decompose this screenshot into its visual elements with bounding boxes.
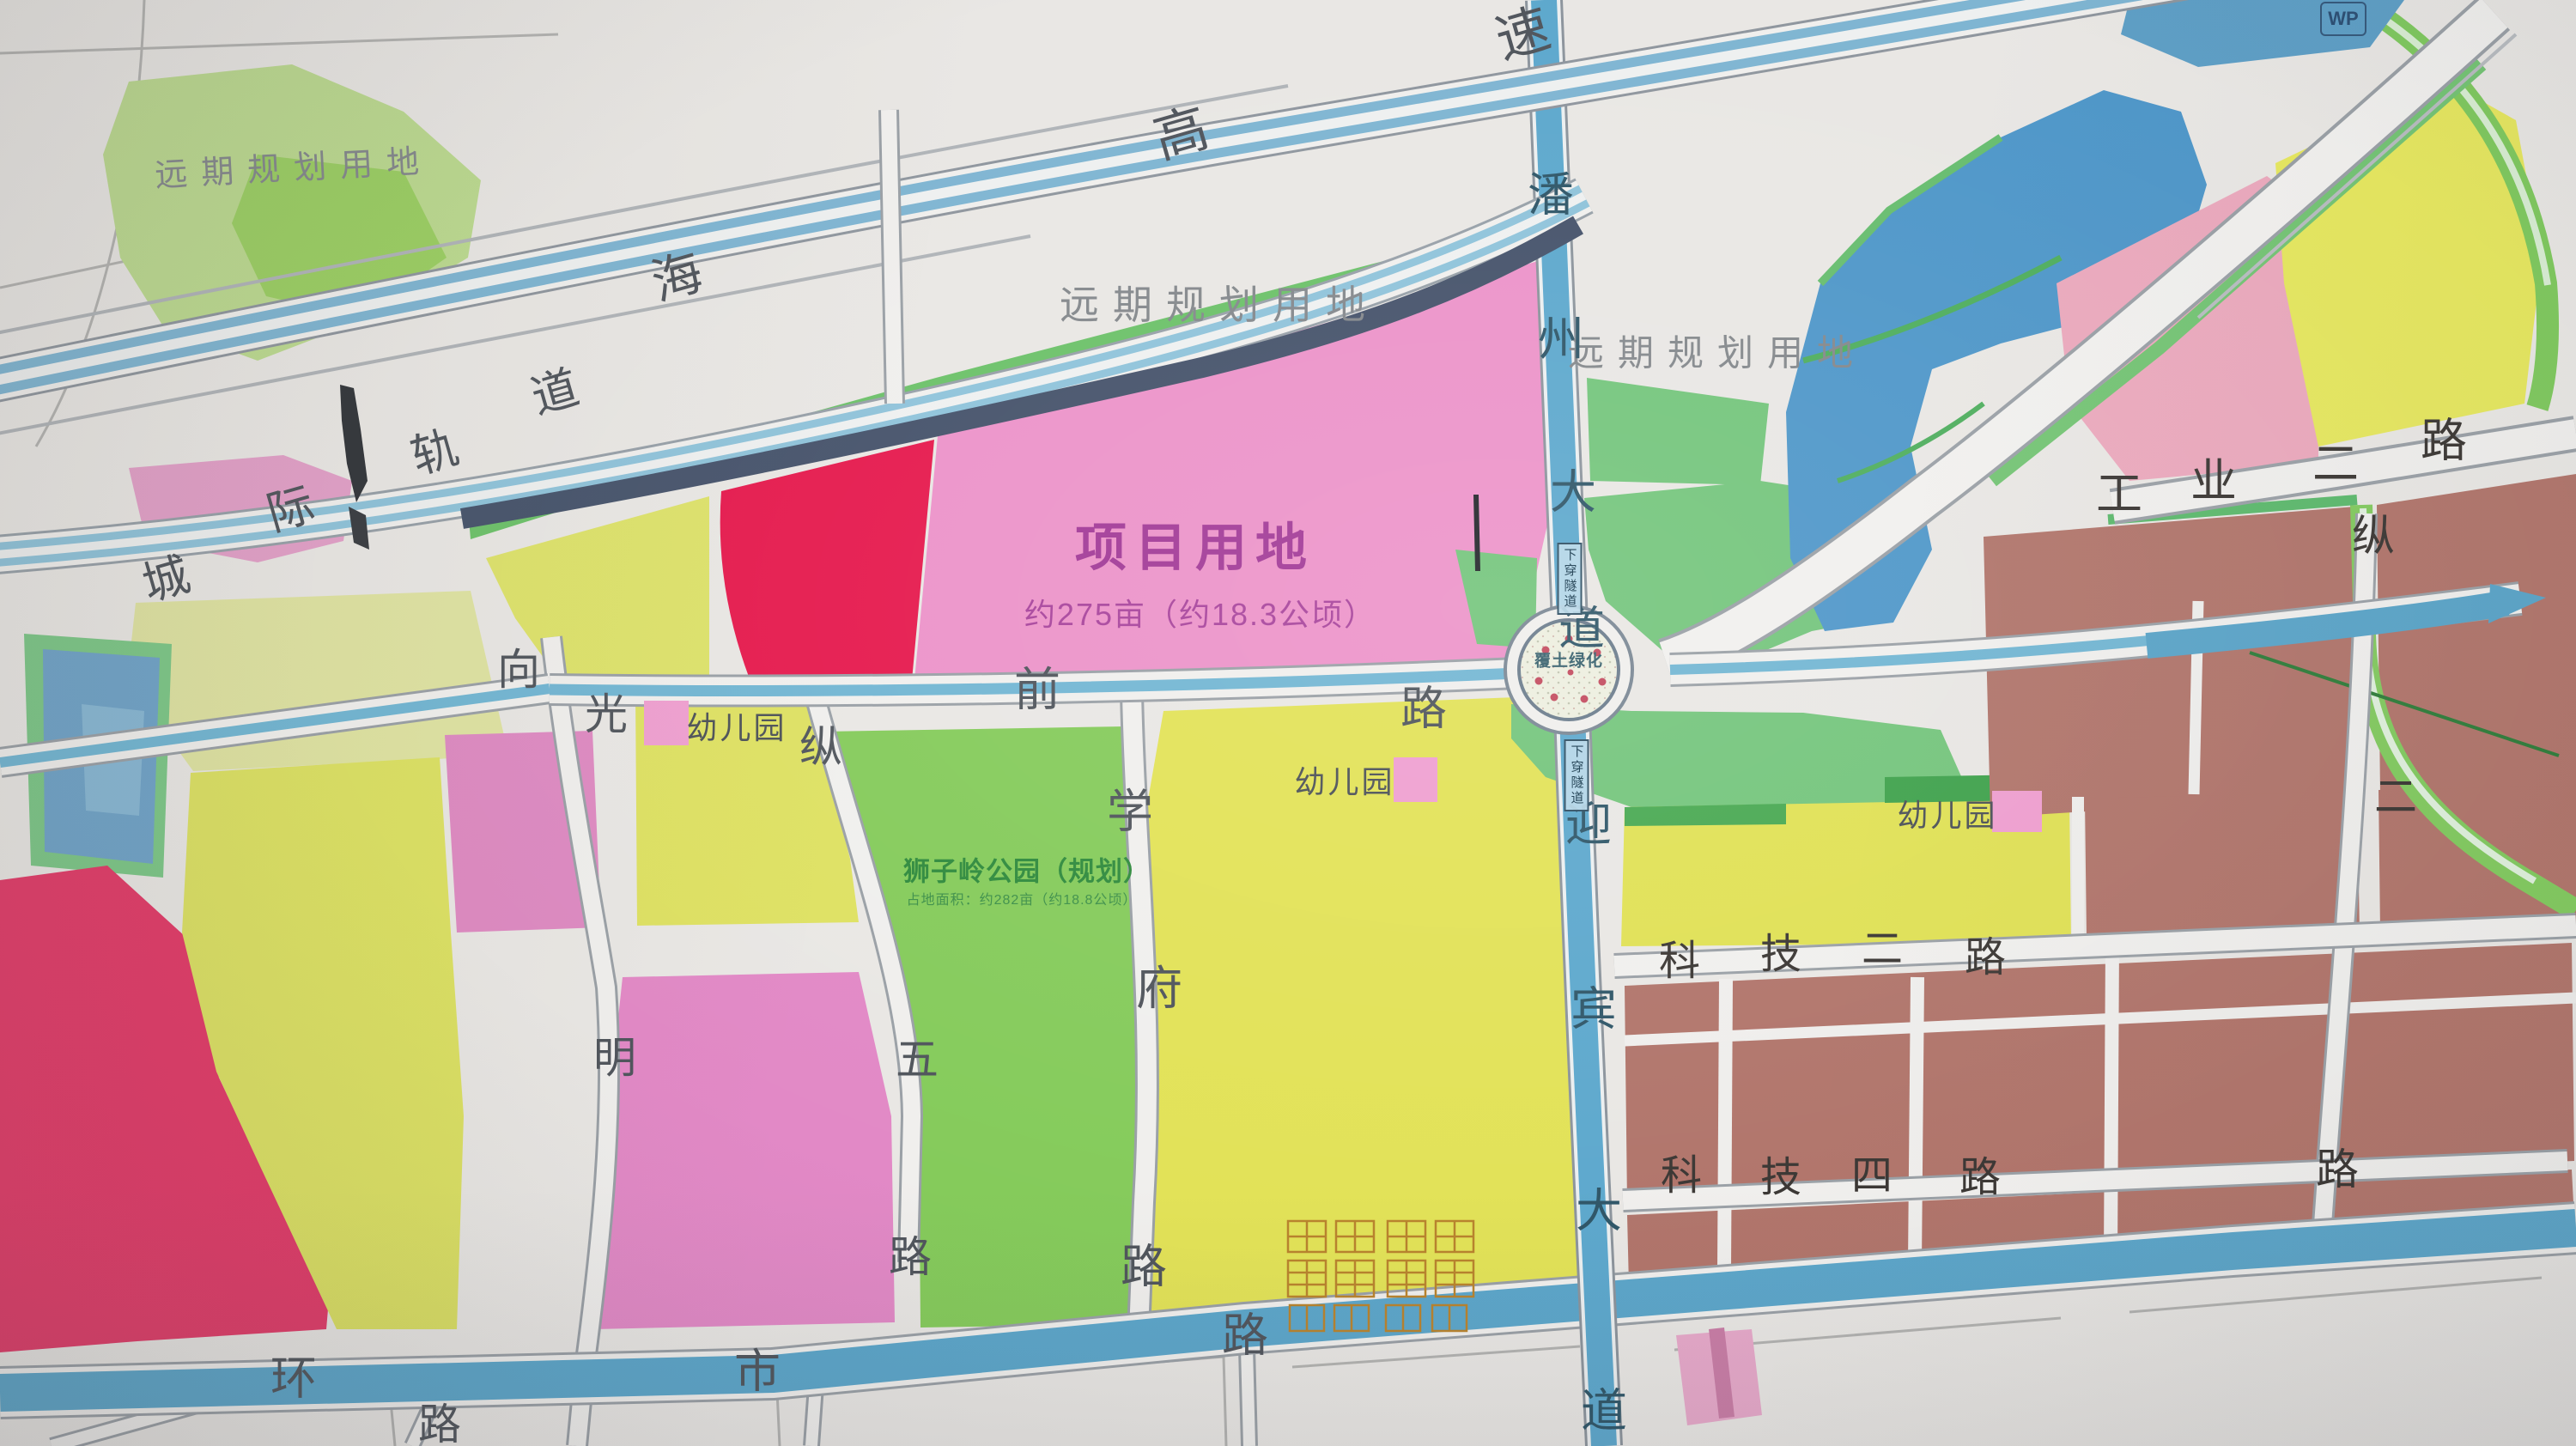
road-label-panzhou-0: 潘 [1528,157,1574,225]
road-label-xgm-2: 明 [593,1024,636,1085]
road-label-zongwu-1: 五 [896,1025,939,1087]
road-label-keji2-2: 二 [1862,914,1903,975]
road-label-keji4-0: 科 [1661,1141,1702,1201]
road-label-gongye2-2: 二 [2312,426,2359,494]
road-label-gongye2-3: 路 [2421,403,2467,471]
road-label-yingbin-2: 大 [1576,1173,1622,1241]
road-label-gongye2-1: 业 [2190,443,2237,511]
road-label-xuefu-1: 府 [1136,951,1182,1018]
road-label-keji2-1: 技 [1760,920,1801,980]
kindergarten-label-2: 幼儿园 [1294,757,1394,802]
tunnel-box-south: 下穿隧道 [1564,739,1589,811]
road-label-qian-1: 路 [1400,671,1447,738]
project-site-title: 项目用地 [1075,507,1315,581]
road-label-huanshi-0: 环 [270,1340,317,1408]
road-label-keji4-1: 技 [1760,1143,1801,1203]
road-label-zong2-2: 路 [2316,1135,2359,1197]
road-label-zong2-1: 二 [2374,762,2417,824]
road-label-xuefu-0: 学 [1107,774,1153,841]
road-label-panzhou-1: 州 [1538,301,1584,369]
project-site-area-label: 约275亩（约18.3公顷） [1024,590,1376,635]
road-label-huanshi-1: 市 [734,1334,781,1401]
pink-parcel-b [594,972,895,1329]
road-label-huanshi-2: 路 [1222,1297,1268,1365]
road-label-keji2-3: 路 [1965,923,2006,983]
road-label-xgm-0: 向 [497,635,540,697]
kindergarten-label-3: 幼儿园 [1897,791,1997,835]
future-land-label-east: 远期规划用地 [1568,325,1867,377]
future-land-label-center: 远期规划用地 [1060,274,1379,331]
tunnel-box-north: 下穿隧道 [1558,543,1583,615]
road-label-keji4-2: 四 [1851,1141,1893,1201]
road-label-xuefu-2: 路 [1121,1229,1167,1297]
road-label-zong2-0: 纵 [2352,501,2395,563]
road-label-keji4-3: 路 [1959,1143,2001,1203]
kindergarten-label-1: 幼儿园 [686,703,787,748]
road-label-qian-0: 前 [1014,652,1060,720]
road-label-xgm-1: 光 [585,680,628,742]
road-label-zongwu-2: 路 [889,1223,932,1285]
road-label-zongwu-0: 纵 [799,713,842,775]
road-label-keji2-0: 科 [1659,927,1700,987]
road-label-panzhou-2: 大 [1550,454,1596,522]
planning-map-photo: 远期规划用地 远期规划用地 远期规划用地 项目用地 约275亩（约18.3公顷）… [0,0,2576,1446]
road-label-yingbin-3: 道 [1581,1373,1627,1441]
road-label-gongye2-0: 工 [2096,456,2142,524]
road-label-unnamed-lu: 路 [418,1390,461,1446]
road-label-yingbin-1: 宾 [1571,971,1617,1039]
lion-park-area-label: 占地面积：约282亩（约18.8公顷） [907,888,1138,908]
wp-badge: WP [2320,2,2366,36]
road-minor-north [889,110,895,404]
map-drawing [0,0,2576,1446]
lion-park-title: 狮子岭公园（规划） [903,850,1151,889]
